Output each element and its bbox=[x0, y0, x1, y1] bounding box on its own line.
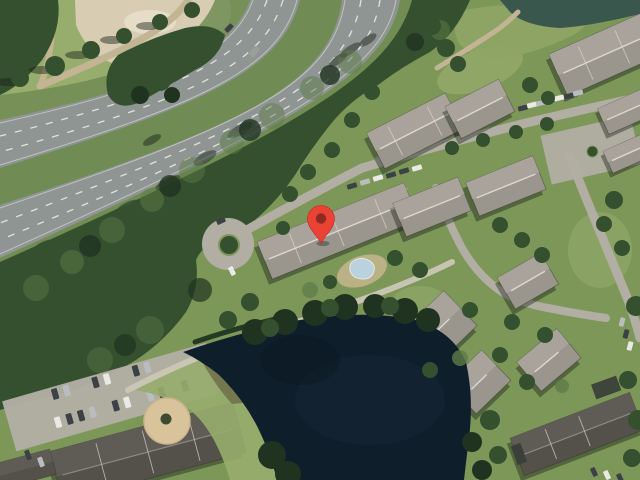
community-pool bbox=[350, 258, 375, 279]
map-viewport[interactable] bbox=[0, 0, 640, 480]
satellite-map[interactable] bbox=[0, 0, 640, 480]
pin-inner-dot bbox=[316, 213, 326, 223]
